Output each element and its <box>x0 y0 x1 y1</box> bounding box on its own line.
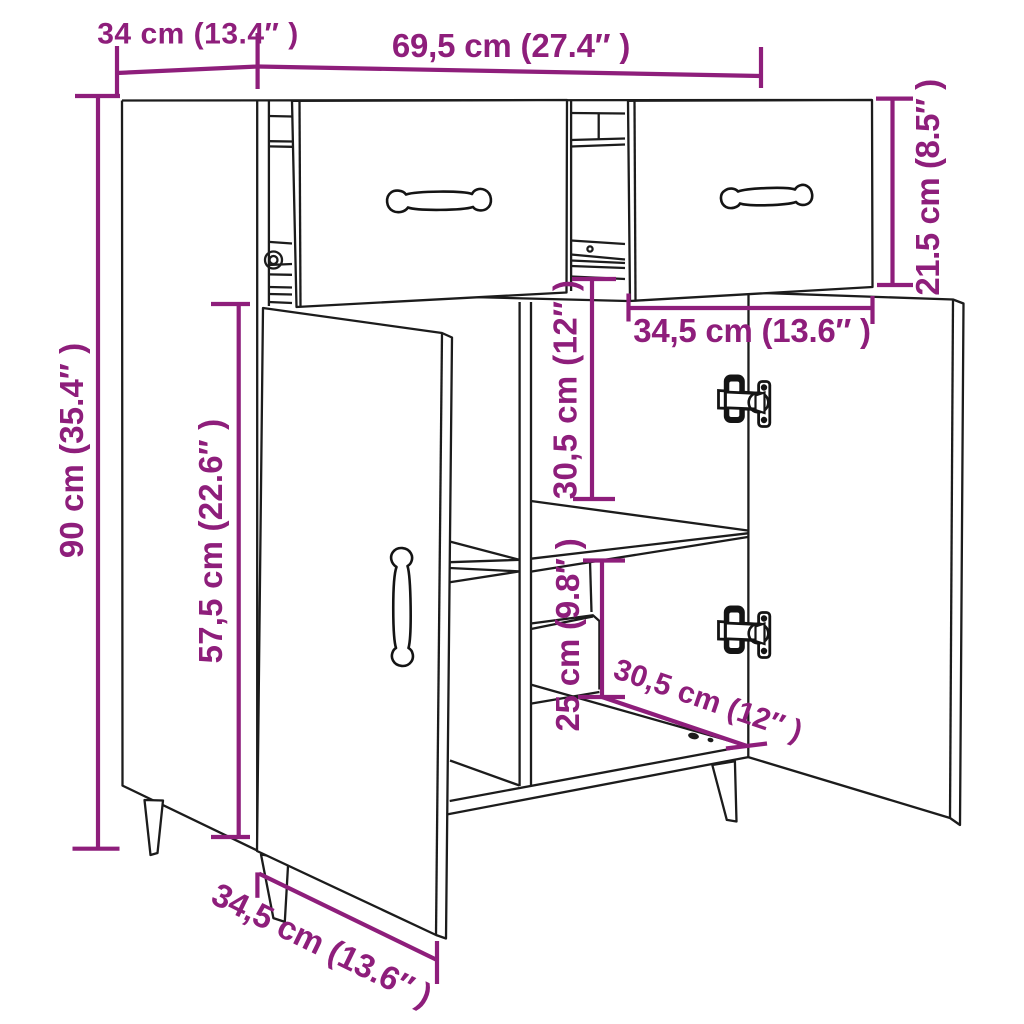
svg-text:90 cm (35.4″ ): 90 cm (35.4″ ) <box>53 343 90 558</box>
svg-text:34 cm (13.4″ ): 34 cm (13.4″ ) <box>97 18 298 51</box>
svg-text:34,5 cm (13.6″ ): 34,5 cm (13.6″ ) <box>633 312 870 349</box>
svg-text:69,5 cm (27.4″ ): 69,5 cm (27.4″ ) <box>392 27 630 64</box>
svg-text:57,5 cm (22.6″ ): 57,5 cm (22.6″ ) <box>192 419 229 664</box>
svg-text:30,5 cm (12″ ): 30,5 cm (12″ ) <box>546 280 583 500</box>
svg-text:25 cm (9.8″ ): 25 cm (9.8″ ) <box>549 539 586 732</box>
svg-text:21.5 cm (8.5″ ): 21.5 cm (8.5″ ) <box>909 79 946 295</box>
